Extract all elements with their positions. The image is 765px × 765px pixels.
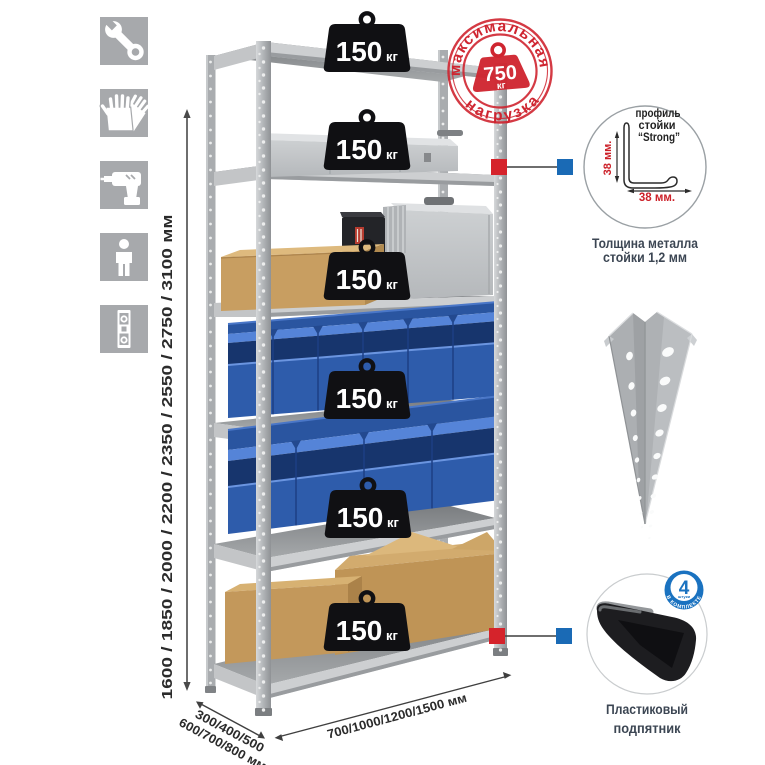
svg-text:“Strong”: “Strong” <box>638 132 680 144</box>
svg-text:700/1000/1200/1500 мм: 700/1000/1200/1500 мм <box>326 691 469 742</box>
svg-text:кг: кг <box>496 80 506 92</box>
svg-text:150: 150 <box>336 264 383 295</box>
svg-text:кг: кг <box>386 277 399 292</box>
svg-text:38 мм.: 38 мм. <box>602 141 614 176</box>
svg-text:Толщина металла: Толщина металла <box>592 236 698 251</box>
svg-text:штуки: штуки <box>678 594 691 599</box>
svg-text:подпятник: подпятник <box>614 721 681 736</box>
svg-text:150: 150 <box>336 134 383 165</box>
svg-text:150: 150 <box>336 615 383 646</box>
svg-text:150: 150 <box>336 36 383 67</box>
svg-text:кг: кг <box>386 396 399 411</box>
svg-text:кг: кг <box>386 147 399 162</box>
svg-text:кг: кг <box>387 515 400 530</box>
svg-text:150: 150 <box>337 502 384 533</box>
svg-text:кг: кг <box>386 49 399 64</box>
svg-text:кг: кг <box>386 628 399 643</box>
svg-text:стойки: стойки <box>639 120 676 132</box>
svg-text:38 мм.: 38 мм. <box>639 192 675 204</box>
svg-text:профиль: профиль <box>636 108 681 120</box>
svg-text:Пластиковый: Пластиковый <box>606 702 688 717</box>
svg-text:1600 / 1850 / 2000 / 2200 / 23: 1600 / 1850 / 2000 / 2200 / 2350 / 2550 … <box>160 215 176 700</box>
svg-text:стойки 1,2 мм: стойки 1,2 мм <box>603 250 687 265</box>
svg-text:150: 150 <box>336 383 383 414</box>
